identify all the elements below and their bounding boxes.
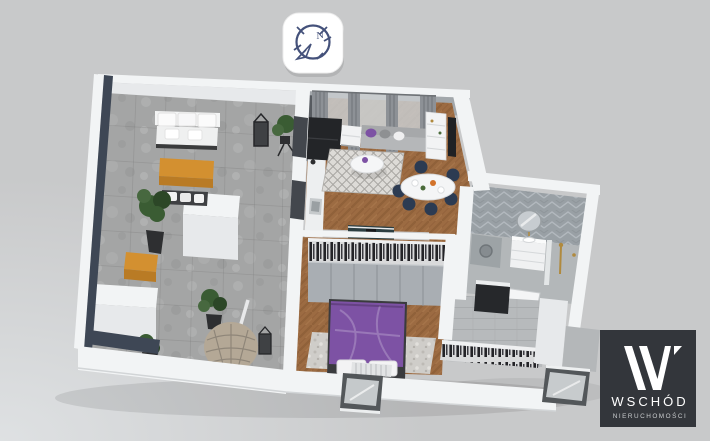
compass-badge[interactable]: N (283, 13, 344, 77)
purple-pillow (366, 129, 377, 138)
hall-tilt-window (542, 365, 590, 406)
floorplan-render: N WSCHÓD NIERUCHOMOŚCI (0, 0, 710, 441)
brand-logo: WSCHÓD NIERUCHOMOŚCI (600, 330, 696, 427)
floorplan-viewer: N WSCHÓD NIERUCHOMOŚCI (0, 0, 710, 441)
outdoor-sofa (155, 111, 220, 150)
dining-table (401, 174, 455, 200)
tv-panel (448, 117, 456, 157)
logo-name: WSCHÓD (611, 394, 688, 409)
bedroom-tilt-window (340, 373, 383, 414)
kettle (311, 160, 316, 165)
southeast-corner-face (562, 326, 600, 372)
hall-east-block (534, 298, 568, 367)
shaft-box (474, 280, 510, 314)
white-armchair (340, 125, 362, 147)
shelf-unit (426, 112, 446, 160)
terrace-coffee-table (159, 158, 214, 188)
washing-machine (470, 234, 502, 268)
vase (362, 157, 368, 163)
wardrobe (308, 238, 446, 306)
bedroom (287, 230, 466, 381)
logo-tagline: NIERUCHOMOŚCI (613, 411, 688, 420)
grey-sofa (360, 125, 428, 152)
terrace-stool (124, 252, 158, 282)
